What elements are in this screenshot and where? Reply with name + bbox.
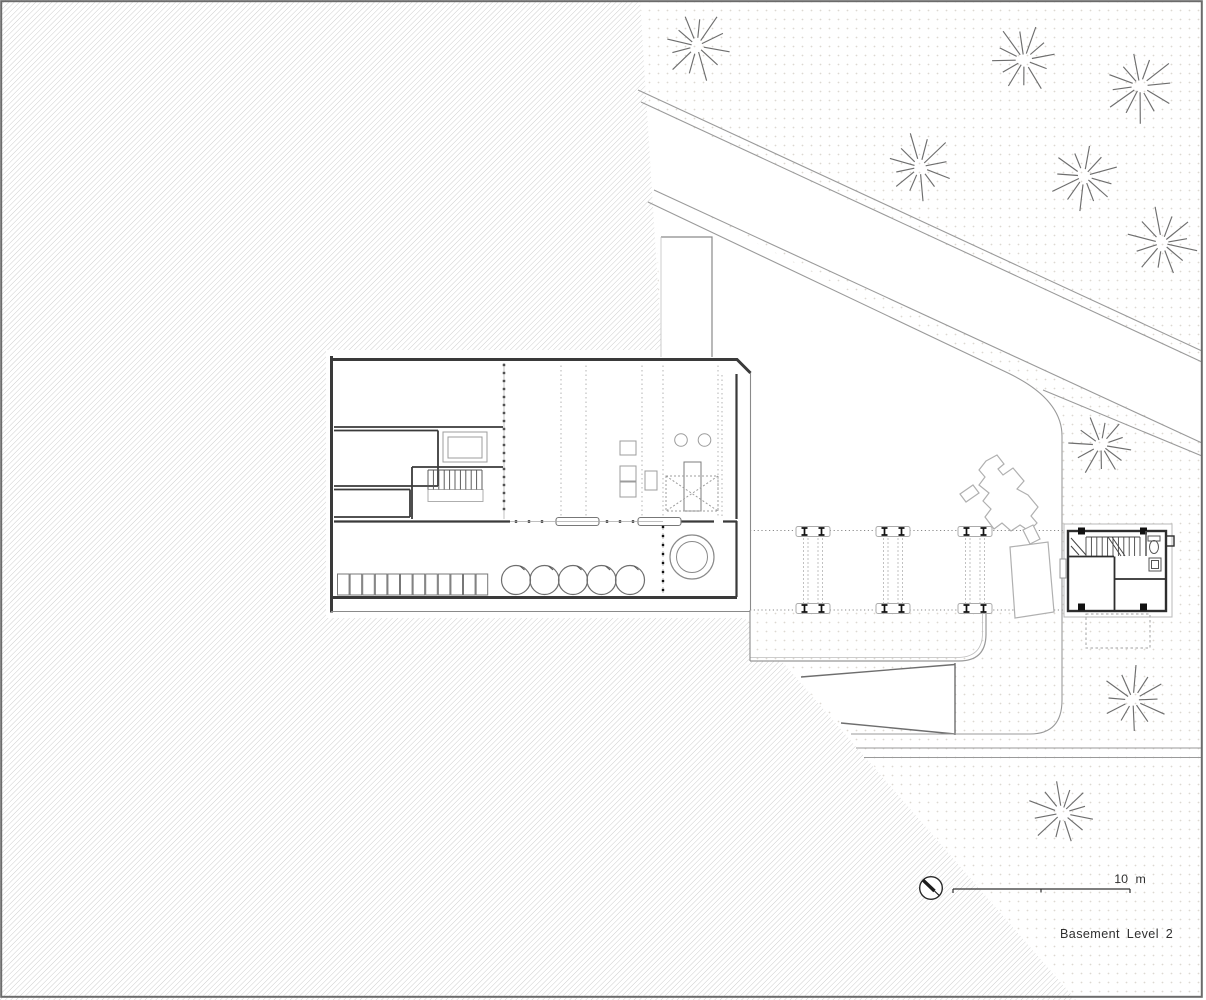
- north-indicator: [920, 877, 943, 900]
- tower-door: [1060, 559, 1066, 578]
- ramp-notch: [661, 236, 712, 357]
- floor-plan-drawing: 10 m Basement Level 2: [0, 0, 1206, 1000]
- title-label: Basement Level 2: [1060, 927, 1173, 941]
- scale-label: 10 m: [1114, 872, 1146, 886]
- plan-margin: [326, 350, 754, 618]
- service-apron: [750, 610, 986, 661]
- container: [1010, 542, 1054, 618]
- drawing-canvas: 10 m Basement Level 2: [0, 0, 1206, 1000]
